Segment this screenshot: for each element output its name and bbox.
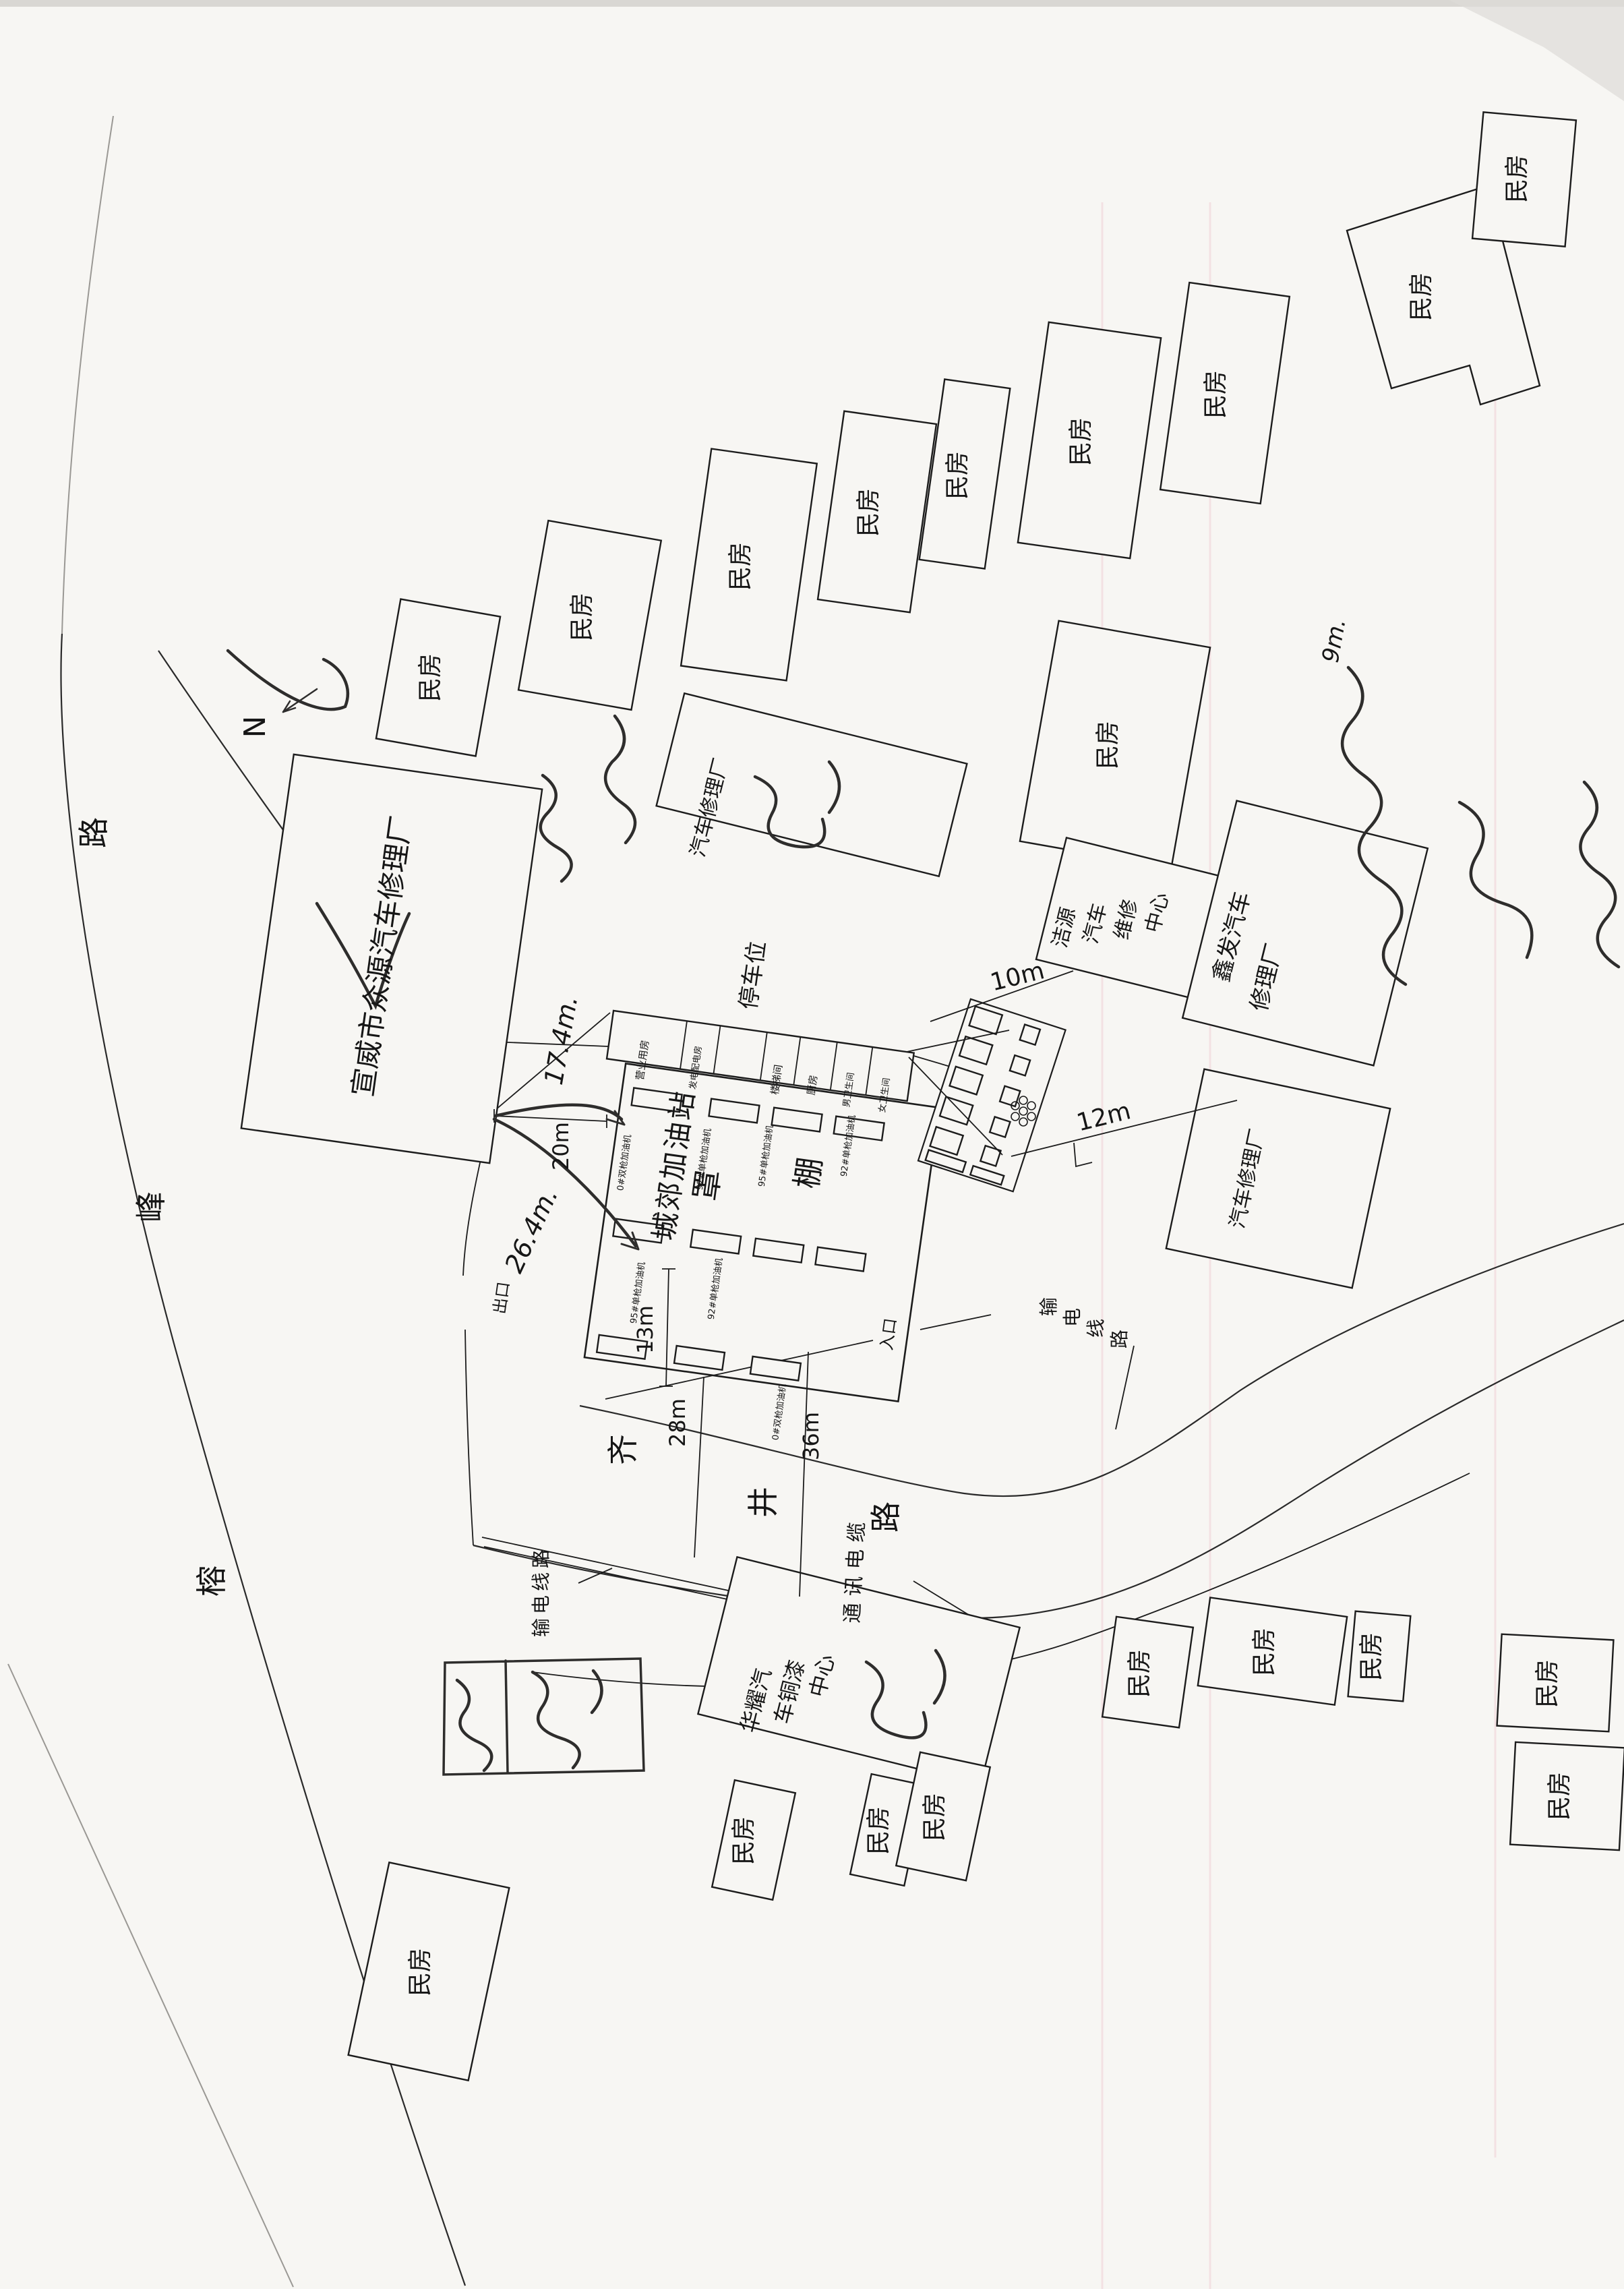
handwritten-scribble [541,775,572,881]
label-minfang: 民房 [417,653,444,702]
label-minfang: 民房 [1251,1628,1278,1676]
svg-text:输: 输 [1037,1297,1060,1316]
svg-text:0#双枪加油机: 0#双枪加油机 [770,1384,789,1441]
dim-13m: 13m [632,1305,658,1354]
svg-text:95#单枪加油机: 95#单枪加油机 [756,1125,776,1188]
site-plan-drawing: 民房 民房 民房 民房 民房 民房 民房 民房 民房 民房 民房 民房 民房 民… [0,0,1624,2289]
label-exit: 出口 [490,1280,513,1315]
label-minfang: 民房 [407,1948,434,1996]
dim-10m: 10m [988,957,1047,997]
paper-crease-diagonal [8,1664,293,2287]
qijing-char-lu: 路 [868,1502,904,1533]
rongfeng-char-rong: 榕 [193,1566,230,1597]
handwritten-17-4m: 17.4m. [539,993,584,1087]
label-minfang: 民房 [1358,1632,1385,1681]
label-minfang: 民房 [568,593,596,641]
site-boundary-south [920,1315,991,1330]
compass-n-label: N [238,716,272,738]
label-minfang: 民房 [1094,721,1122,769]
svg-text:92#单枪加油机: 92#单枪加油机 [706,1257,725,1321]
label-station-name: 城郊加油站 [647,1088,701,1243]
label-minfang: 民房 [730,1816,758,1865]
label-power-line-left: 输电线路 [530,1545,552,1637]
dim-36m: 36m [798,1412,824,1460]
building-right-repair-shop [1166,1069,1390,1288]
rongfeng-char-lu: 路 [76,817,112,848]
handwritten-26-4m: 26.4m. [499,1183,564,1278]
label-minfang: 民房 [944,451,971,500]
qijing-char-qi: 齐 [605,1434,641,1465]
handwritten-box-notes [444,1659,644,1775]
handwritten-scribble [605,716,635,843]
svg-text:电: 电 [1061,1308,1083,1327]
label-canopy-char2: 棚 [788,1155,829,1191]
north-arrow [228,651,348,712]
label-minfang: 民房 [1534,1659,1561,1708]
dim-12m: 12m [1074,1097,1133,1137]
label-minfang: 民房 [727,542,754,591]
handwritten-9m: 9m. [1317,616,1352,665]
scanned-site-plan: 民房 民房 民房 民房 民房 民房 民房 民房 民房 民房 民房 民房 民房 民… [0,0,1624,2289]
site-boundary-west [465,1330,473,1545]
label-minfang: 民房 [865,1806,893,1855]
label-minfang: 民房 [1503,154,1531,203]
tank-yard [918,999,1066,1191]
label-minfang: 民房 [1546,1772,1573,1820]
dim-20m: 20m [548,1122,574,1170]
scan-corner-shade [1449,0,1624,101]
svg-text:厨房: 厨房 [805,1074,820,1096]
label-power-line-right: 输 电 线 路 [1037,1297,1131,1348]
scan-edge-top [0,0,1624,7]
svg-text:线: 线 [1085,1319,1107,1338]
svg-text:路: 路 [1108,1330,1131,1348]
rongfeng-char-feng: 峰 [133,1191,169,1222]
station-rooms-strip [607,1011,914,1101]
label-minfang: 民房 [855,488,882,537]
label-minfang: 民房 [921,1793,949,1841]
label-entrance: 入口 [877,1317,900,1351]
dim-28m: 28m [665,1398,690,1447]
paper-crease [62,116,113,634]
svg-text:0#双枪加油机: 0#双枪加油机 [615,1134,634,1192]
qijing-char-jing: 井 [745,1487,781,1518]
label-minfang: 民房 [1126,1649,1153,1698]
label-parking: 停车位 [735,939,771,1011]
handwritten-scribble-corner [1580,782,1619,967]
label-minfang: 民房 [1067,417,1095,466]
qijing-road-lower-edge [473,1320,1624,1618]
power-line-right-leader [1116,1346,1134,1429]
label-minfang: 民房 [1202,370,1230,419]
label-minfang: 民房 [1408,272,1435,321]
